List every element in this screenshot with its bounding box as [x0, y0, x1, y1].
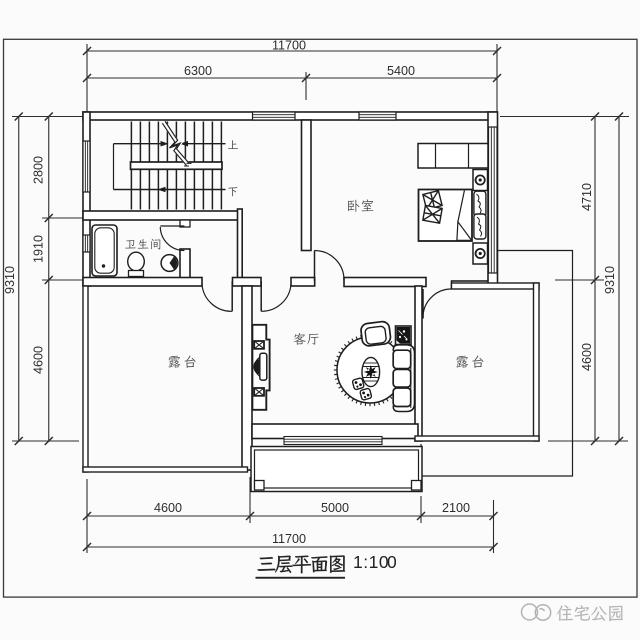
svg-text:9310: 9310 [603, 266, 617, 294]
svg-text:0: 0 [387, 552, 397, 572]
svg-text:4600: 4600 [580, 343, 594, 371]
svg-text:11700: 11700 [272, 532, 306, 546]
svg-text:1910: 1910 [32, 235, 46, 263]
svg-text:4710: 4710 [580, 183, 594, 211]
svg-text:1:10: 1:10 [353, 552, 389, 572]
svg-text:4600: 4600 [154, 501, 182, 515]
svg-text:5000: 5000 [321, 501, 349, 515]
svg-text:6300: 6300 [184, 64, 212, 78]
svg-text:5400: 5400 [387, 64, 415, 78]
svg-text:9310: 9310 [3, 266, 17, 294]
svg-text:11700: 11700 [272, 39, 306, 53]
svg-text:4600: 4600 [32, 346, 46, 374]
svg-text:2100: 2100 [442, 501, 470, 515]
svg-text:2800: 2800 [32, 156, 46, 184]
